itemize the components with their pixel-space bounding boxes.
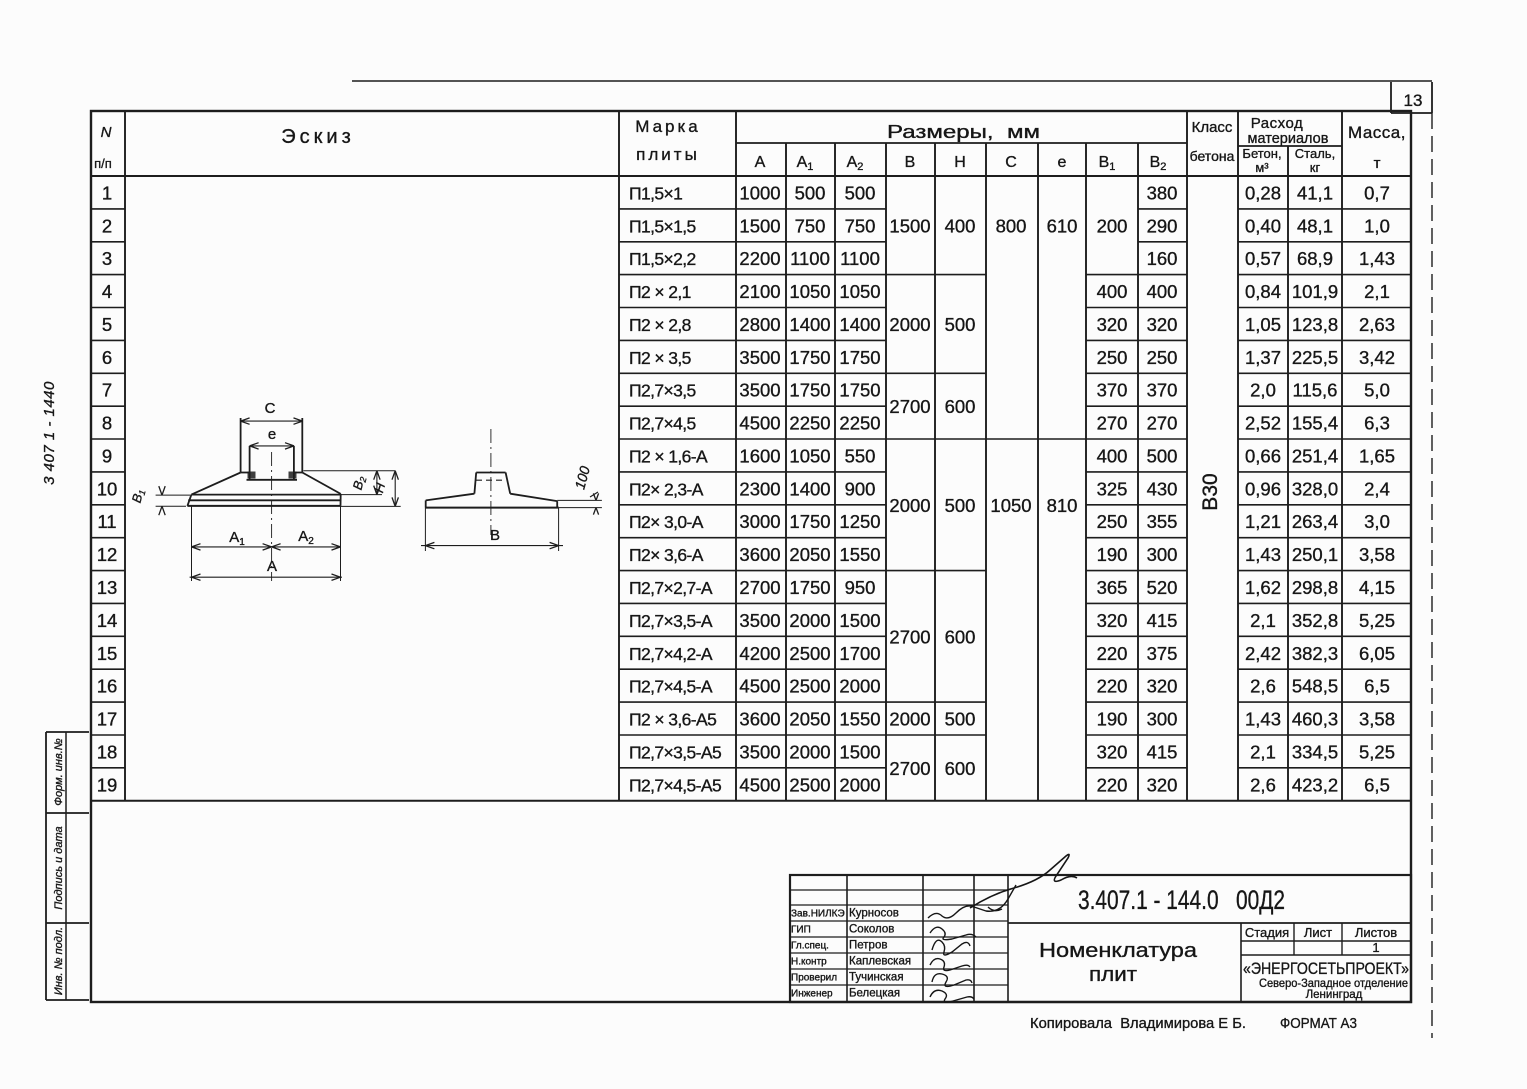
svg-text:2,1: 2,1 — [1250, 610, 1276, 631]
svg-text:500: 500 — [795, 182, 826, 203]
svg-text:2,42: 2,42 — [1245, 643, 1281, 664]
svg-text:19: 19 — [97, 774, 118, 795]
svg-text:П2× 2,3-А: П2× 2,3-А — [629, 479, 704, 499]
svg-text:П2,7×4,5-А: П2,7×4,5-А — [629, 677, 713, 697]
svg-text:2300: 2300 — [739, 478, 780, 499]
svg-text:Бетон,: Бетон, — [1242, 146, 1281, 161]
svg-text:2050: 2050 — [789, 544, 830, 565]
svg-text:1100: 1100 — [790, 248, 830, 269]
svg-text:П1,5×1,5: П1,5×1,5 — [629, 216, 696, 236]
svg-text:225,5: 225,5 — [1292, 347, 1338, 368]
svg-text:1750: 1750 — [789, 347, 830, 368]
svg-text:2700: 2700 — [889, 758, 930, 779]
svg-text:4: 4 — [102, 281, 112, 302]
svg-text:Н: Н — [371, 481, 388, 495]
svg-text:4,15: 4,15 — [1359, 577, 1395, 598]
svg-text:2700: 2700 — [889, 626, 930, 647]
svg-text:3.407.1 - 144.0 00Д2: 3.407.1 - 144.0 00Д2 — [1078, 885, 1285, 915]
svg-text:430: 430 — [1147, 478, 1178, 499]
svg-text:П2,7×4,2-А: П2,7×4,2-А — [629, 644, 713, 664]
svg-text:0,57: 0,57 — [1245, 248, 1281, 269]
svg-text:0,28: 0,28 — [1245, 182, 1281, 203]
svg-text:В: В — [490, 527, 500, 544]
svg-text:1100: 1100 — [840, 248, 880, 269]
svg-text:П1,5×2,2: П1,5×2,2 — [629, 249, 696, 269]
svg-text:Расход: Расход — [1251, 115, 1303, 132]
svg-text:Ленинград: Ленинград — [1306, 989, 1363, 1001]
svg-text:320: 320 — [1147, 676, 1178, 697]
svg-text:13: 13 — [1404, 91, 1423, 110]
svg-text:500: 500 — [945, 709, 976, 730]
svg-text:155,4: 155,4 — [1292, 413, 1338, 434]
svg-text:600: 600 — [945, 758, 976, 779]
svg-text:Размеры, мм: Размеры, мм — [887, 122, 1040, 142]
svg-text:12: 12 — [97, 544, 118, 565]
svg-text:3: 3 — [102, 248, 112, 269]
svg-text:5,0: 5,0 — [1364, 380, 1390, 401]
svg-text:А1: А1 — [229, 529, 245, 548]
svg-text:Зав.НИЛКЭ: Зав.НИЛКЭ — [791, 909, 845, 920]
svg-text:Листов: Листов — [1355, 925, 1397, 940]
svg-text:100: 100 — [571, 464, 593, 491]
svg-text:2,52: 2,52 — [1245, 413, 1281, 434]
svg-text:2100: 2100 — [739, 281, 780, 302]
svg-text:423,2: 423,2 — [1292, 774, 1338, 795]
svg-text:1: 1 — [102, 182, 112, 203]
svg-text:Класс: Класс — [1192, 119, 1233, 136]
svg-text:10: 10 — [97, 478, 118, 499]
svg-text:Номенклатура: Номенклатура — [1039, 940, 1198, 962]
svg-text:1500: 1500 — [889, 215, 930, 236]
svg-text:250: 250 — [1147, 347, 1178, 368]
svg-text:950: 950 — [845, 577, 876, 598]
svg-text:Каплевская: Каплевская — [849, 956, 911, 968]
svg-text:500: 500 — [845, 182, 876, 203]
svg-text:15: 15 — [97, 643, 118, 664]
svg-text:П2,7×3,5-А5: П2,7×3,5-А5 — [629, 742, 721, 762]
svg-text:П2,7×4,5: П2,7×4,5 — [629, 414, 696, 434]
svg-text:2700: 2700 — [739, 577, 780, 598]
svg-text:3 407 1 - 1440: 3 407 1 - 1440 — [41, 381, 58, 485]
svg-text:4500: 4500 — [739, 774, 780, 795]
svg-text:375: 375 — [1147, 643, 1178, 664]
svg-text:1750: 1750 — [839, 347, 880, 368]
svg-text:1,05: 1,05 — [1245, 314, 1281, 335]
svg-text:2250: 2250 — [789, 413, 830, 434]
svg-text:320: 320 — [1097, 741, 1128, 762]
svg-text:190: 190 — [1097, 709, 1128, 730]
svg-text:220: 220 — [1097, 774, 1128, 795]
svg-text:П2,7×3,5-А: П2,7×3,5-А — [629, 611, 713, 631]
svg-text:4500: 4500 — [739, 413, 780, 434]
svg-text:бетона: бетона — [1190, 148, 1235, 164]
svg-text:290: 290 — [1147, 215, 1178, 236]
svg-text:0,40: 0,40 — [1245, 215, 1281, 236]
svg-text:П2 × 2,8: П2 × 2,8 — [629, 315, 691, 335]
svg-text:2500: 2500 — [789, 774, 830, 795]
svg-text:548,5: 548,5 — [1292, 676, 1338, 697]
svg-text:320: 320 — [1147, 314, 1178, 335]
svg-text:800: 800 — [996, 215, 1027, 236]
svg-text:1500: 1500 — [839, 741, 880, 762]
svg-text:1250: 1250 — [839, 511, 880, 532]
svg-text:е: е — [1058, 154, 1067, 171]
svg-text:2250: 2250 — [839, 413, 880, 434]
svg-text:2000: 2000 — [789, 741, 830, 762]
svg-text:П2× 3,6-А: П2× 3,6-А — [629, 545, 704, 565]
svg-text:9: 9 — [102, 446, 112, 467]
svg-text:Инв. № подл.: Инв. № подл. — [53, 927, 65, 995]
svg-text:325: 325 — [1097, 478, 1128, 499]
svg-text:2050: 2050 — [789, 709, 830, 730]
svg-text:380: 380 — [1147, 182, 1178, 203]
svg-text:370: 370 — [1097, 380, 1128, 401]
svg-text:460,3: 460,3 — [1292, 709, 1338, 730]
svg-text:П2 × 3,6-А5: П2 × 3,6-А5 — [629, 710, 716, 730]
svg-text:320: 320 — [1097, 610, 1128, 631]
svg-text:382,3: 382,3 — [1292, 643, 1338, 664]
svg-text:11: 11 — [97, 511, 116, 532]
svg-text:0,66: 0,66 — [1245, 446, 1281, 467]
svg-text:П2,7×4,5-А5: П2,7×4,5-А5 — [629, 775, 721, 795]
svg-text:ГИП: ГИП — [791, 925, 811, 936]
svg-text:400: 400 — [945, 215, 976, 236]
svg-text:41,1: 41,1 — [1297, 182, 1333, 203]
svg-text:298,8: 298,8 — [1292, 577, 1338, 598]
svg-text:160: 160 — [1147, 248, 1178, 269]
svg-text:6,3: 6,3 — [1364, 413, 1390, 434]
svg-text:320: 320 — [1097, 314, 1128, 335]
svg-text:2000: 2000 — [839, 676, 880, 697]
svg-text:370: 370 — [1147, 380, 1178, 401]
svg-text:300: 300 — [1147, 544, 1178, 565]
svg-text:1700: 1700 — [839, 643, 880, 664]
svg-text:П2 × 1,6-А: П2 × 1,6-А — [629, 447, 708, 467]
svg-text:300: 300 — [1147, 709, 1178, 730]
svg-text:200: 200 — [1097, 215, 1128, 236]
svg-text:1550: 1550 — [839, 544, 880, 565]
svg-text:5: 5 — [102, 314, 112, 335]
svg-text:6,05: 6,05 — [1359, 643, 1395, 664]
svg-text:220: 220 — [1097, 676, 1128, 697]
svg-text:250,1: 250,1 — [1292, 544, 1338, 565]
svg-text:520: 520 — [1147, 577, 1178, 598]
svg-text:5,25: 5,25 — [1359, 741, 1395, 762]
svg-text:7: 7 — [102, 380, 112, 401]
svg-text:320: 320 — [1147, 774, 1178, 795]
svg-text:Масса,: Масса, — [1348, 123, 1406, 142]
svg-text:6,5: 6,5 — [1364, 774, 1390, 795]
svg-text:А: А — [267, 558, 277, 575]
svg-text:810: 810 — [1047, 495, 1078, 516]
svg-text:кг: кг — [1310, 160, 1321, 175]
svg-text:6,5: 6,5 — [1364, 676, 1390, 697]
svg-text:0,7: 0,7 — [1364, 182, 1390, 203]
svg-text:1050: 1050 — [789, 446, 830, 467]
svg-text:2,6: 2,6 — [1250, 774, 1276, 795]
svg-text:2000: 2000 — [889, 709, 930, 730]
svg-text:П2× 3,0-А: П2× 3,0-А — [629, 512, 704, 532]
svg-text:400: 400 — [1147, 281, 1178, 302]
svg-text:600: 600 — [945, 626, 976, 647]
svg-text:Сталь,: Сталь, — [1295, 146, 1335, 161]
svg-text:е: е — [268, 426, 276, 443]
svg-text:13: 13 — [97, 577, 118, 598]
svg-text:8: 8 — [102, 413, 112, 434]
svg-text:А: А — [755, 154, 766, 171]
svg-text:250: 250 — [1097, 511, 1128, 532]
svg-text:Курносов: Курносов — [849, 908, 899, 920]
svg-text:2800: 2800 — [739, 314, 780, 335]
svg-text:48,1: 48,1 — [1297, 215, 1333, 236]
svg-text:2000: 2000 — [789, 610, 830, 631]
svg-text:365: 365 — [1097, 577, 1128, 598]
svg-text:1400: 1400 — [839, 314, 880, 335]
svg-text:2: 2 — [102, 215, 112, 236]
svg-text:3600: 3600 — [739, 544, 780, 565]
svg-text:В: В — [905, 154, 916, 171]
svg-text:500: 500 — [1147, 446, 1178, 467]
svg-text:Стадия: Стадия — [1245, 925, 1289, 940]
svg-text:С: С — [265, 400, 276, 417]
svg-text:263,4: 263,4 — [1292, 511, 1338, 532]
svg-text:1000: 1000 — [739, 182, 780, 203]
svg-text:1400: 1400 — [789, 314, 830, 335]
svg-text:220: 220 — [1097, 643, 1128, 664]
svg-text:270: 270 — [1147, 413, 1178, 434]
svg-text:2000: 2000 — [889, 314, 930, 335]
svg-text:1400: 1400 — [789, 478, 830, 499]
svg-text:Проверил: Проверил — [791, 973, 837, 984]
svg-text:3000: 3000 — [739, 511, 780, 532]
svg-text:600: 600 — [945, 396, 976, 417]
svg-text:1,43: 1,43 — [1359, 248, 1395, 269]
svg-text:18: 18 — [97, 741, 118, 762]
svg-text:2000: 2000 — [889, 495, 930, 516]
svg-text:Марка: Марка — [635, 117, 701, 136]
svg-text:П2 × 2,1: П2 × 2,1 — [629, 282, 691, 302]
svg-text:1050: 1050 — [839, 281, 880, 302]
svg-text:Тучинская: Тучинская — [849, 972, 904, 984]
svg-text:1500: 1500 — [739, 215, 780, 236]
svg-text:500: 500 — [945, 495, 976, 516]
svg-text:68,9: 68,9 — [1297, 248, 1333, 269]
svg-text:355: 355 — [1147, 511, 1178, 532]
svg-text:1550: 1550 — [839, 709, 880, 730]
svg-text:П1,5×1: П1,5×1 — [629, 183, 682, 203]
svg-text:1050: 1050 — [990, 495, 1031, 516]
svg-text:В30: В30 — [1199, 473, 1222, 510]
svg-text:400: 400 — [1097, 446, 1128, 467]
svg-text:3600: 3600 — [739, 709, 780, 730]
svg-text:Копировала Владимирова Е Б.: Копировала Владимирова Е Б. — [1030, 1015, 1246, 1032]
svg-text:1500: 1500 — [839, 610, 880, 631]
svg-text:В2: В2 — [1150, 154, 1167, 173]
svg-text:П2,7×2,7-А: П2,7×2,7-А — [629, 578, 713, 598]
svg-text:1,65: 1,65 — [1359, 446, 1395, 467]
svg-text:328,0: 328,0 — [1292, 478, 1338, 499]
svg-text:В1: В1 — [1099, 154, 1116, 173]
svg-text:1750: 1750 — [789, 380, 830, 401]
svg-text:190: 190 — [1097, 544, 1128, 565]
svg-text:6: 6 — [102, 347, 112, 368]
svg-text:3,0: 3,0 — [1364, 511, 1390, 532]
svg-text:В2: В2 — [350, 474, 369, 491]
svg-text:А2: А2 — [298, 528, 314, 547]
svg-text:1600: 1600 — [739, 446, 780, 467]
svg-text:Петров: Петров — [849, 940, 887, 952]
svg-text:400: 400 — [1097, 281, 1128, 302]
svg-text:2200: 2200 — [739, 248, 780, 269]
svg-text:В1: В1 — [129, 487, 148, 504]
svg-text:415: 415 — [1147, 741, 1178, 762]
svg-text:750: 750 — [845, 215, 876, 236]
svg-text:т: т — [1374, 155, 1381, 172]
svg-text:С: С — [1005, 154, 1017, 171]
svg-text:900: 900 — [845, 478, 876, 499]
svg-text:Подпись и дата: Подпись и дата — [53, 826, 65, 909]
svg-text:3,58: 3,58 — [1359, 544, 1395, 565]
svg-text:п/п: п/п — [94, 156, 112, 171]
svg-text:270: 270 — [1097, 413, 1128, 434]
svg-text:123,8: 123,8 — [1292, 314, 1338, 335]
svg-text:0,96: 0,96 — [1245, 478, 1281, 499]
svg-text:1,0: 1,0 — [1364, 215, 1390, 236]
svg-text:2700: 2700 — [889, 396, 930, 417]
svg-text:3,58: 3,58 — [1359, 709, 1395, 730]
svg-text:3500: 3500 — [739, 347, 780, 368]
svg-text:550: 550 — [845, 446, 876, 467]
svg-text:1,37: 1,37 — [1245, 347, 1281, 368]
svg-text:4200: 4200 — [739, 643, 780, 664]
svg-text:1750: 1750 — [789, 511, 830, 532]
svg-text:2500: 2500 — [789, 643, 830, 664]
svg-text:плит: плит — [1089, 964, 1137, 986]
svg-text:610: 610 — [1047, 215, 1078, 236]
svg-text:3500: 3500 — [739, 741, 780, 762]
svg-text:П2,7×3,5: П2,7×3,5 — [629, 381, 696, 401]
svg-text:1: 1 — [1372, 940, 1379, 955]
svg-text:Северо-Западное отделение: Северо-Западное отделение — [1259, 976, 1408, 990]
svg-text:2500: 2500 — [789, 676, 830, 697]
svg-text:1,43: 1,43 — [1245, 544, 1281, 565]
svg-text:А2: А2 — [847, 154, 864, 173]
svg-text:250: 250 — [1097, 347, 1128, 368]
svg-text:2,0: 2,0 — [1250, 380, 1276, 401]
svg-text:5,25: 5,25 — [1359, 610, 1395, 631]
svg-text:352,8: 352,8 — [1292, 610, 1338, 631]
svg-text:750: 750 — [795, 215, 826, 236]
svg-text:16: 16 — [97, 676, 118, 697]
svg-text:2,6: 2,6 — [1250, 676, 1276, 697]
svg-text:ФОРМАТ А3: ФОРМАТ А3 — [1280, 1015, 1357, 1032]
svg-text:1750: 1750 — [789, 577, 830, 598]
svg-text:2,1: 2,1 — [1364, 281, 1390, 302]
svg-text:3,42: 3,42 — [1359, 347, 1395, 368]
svg-text:плиты: плиты — [636, 145, 700, 164]
svg-text:3500: 3500 — [739, 610, 780, 631]
svg-text:Форм. инв.№: Форм. инв.№ — [53, 738, 65, 805]
svg-text:101,9: 101,9 — [1292, 281, 1338, 302]
svg-text:17: 17 — [97, 709, 118, 730]
svg-text:251,4: 251,4 — [1292, 446, 1338, 467]
svg-text:500: 500 — [945, 314, 976, 335]
svg-text:1,43: 1,43 — [1245, 709, 1281, 730]
svg-text:334,5: 334,5 — [1292, 741, 1338, 762]
svg-text:14: 14 — [97, 610, 118, 631]
svg-text:Гл.спец.: Гл.спец. — [791, 941, 829, 952]
svg-text:1,62: 1,62 — [1245, 577, 1281, 598]
svg-text:415: 415 — [1147, 610, 1178, 631]
svg-text:0,84: 0,84 — [1245, 281, 1281, 302]
svg-text:А1: А1 — [797, 154, 814, 173]
svg-text:3500: 3500 — [739, 380, 780, 401]
svg-text:Инженер: Инженер — [791, 989, 833, 1000]
svg-text:2,4: 2,4 — [1364, 478, 1390, 499]
svg-text:материалов: материалов — [1248, 131, 1329, 147]
svg-text:2000: 2000 — [839, 774, 880, 795]
svg-text:2,63: 2,63 — [1359, 314, 1395, 335]
svg-text:Н.контр: Н.контр — [791, 957, 827, 968]
svg-text:4500: 4500 — [739, 676, 780, 697]
svg-text:Лист: Лист — [1304, 925, 1332, 940]
svg-text:Н: Н — [954, 154, 966, 171]
svg-text:Эскиз: Эскиз — [281, 126, 354, 148]
svg-text:1,21: 1,21 — [1245, 511, 1281, 532]
svg-text:Белецкая: Белецкая — [849, 988, 900, 1000]
svg-text:N: N — [101, 124, 112, 141]
svg-text:Соколов: Соколов — [849, 924, 894, 936]
svg-text:115,6: 115,6 — [1293, 380, 1338, 401]
svg-text:1750: 1750 — [839, 380, 880, 401]
svg-text:м³: м³ — [1255, 160, 1269, 175]
svg-text:П2 × 3,5: П2 × 3,5 — [629, 348, 691, 368]
svg-text:1050: 1050 — [789, 281, 830, 302]
svg-text:2,1: 2,1 — [1250, 741, 1276, 762]
